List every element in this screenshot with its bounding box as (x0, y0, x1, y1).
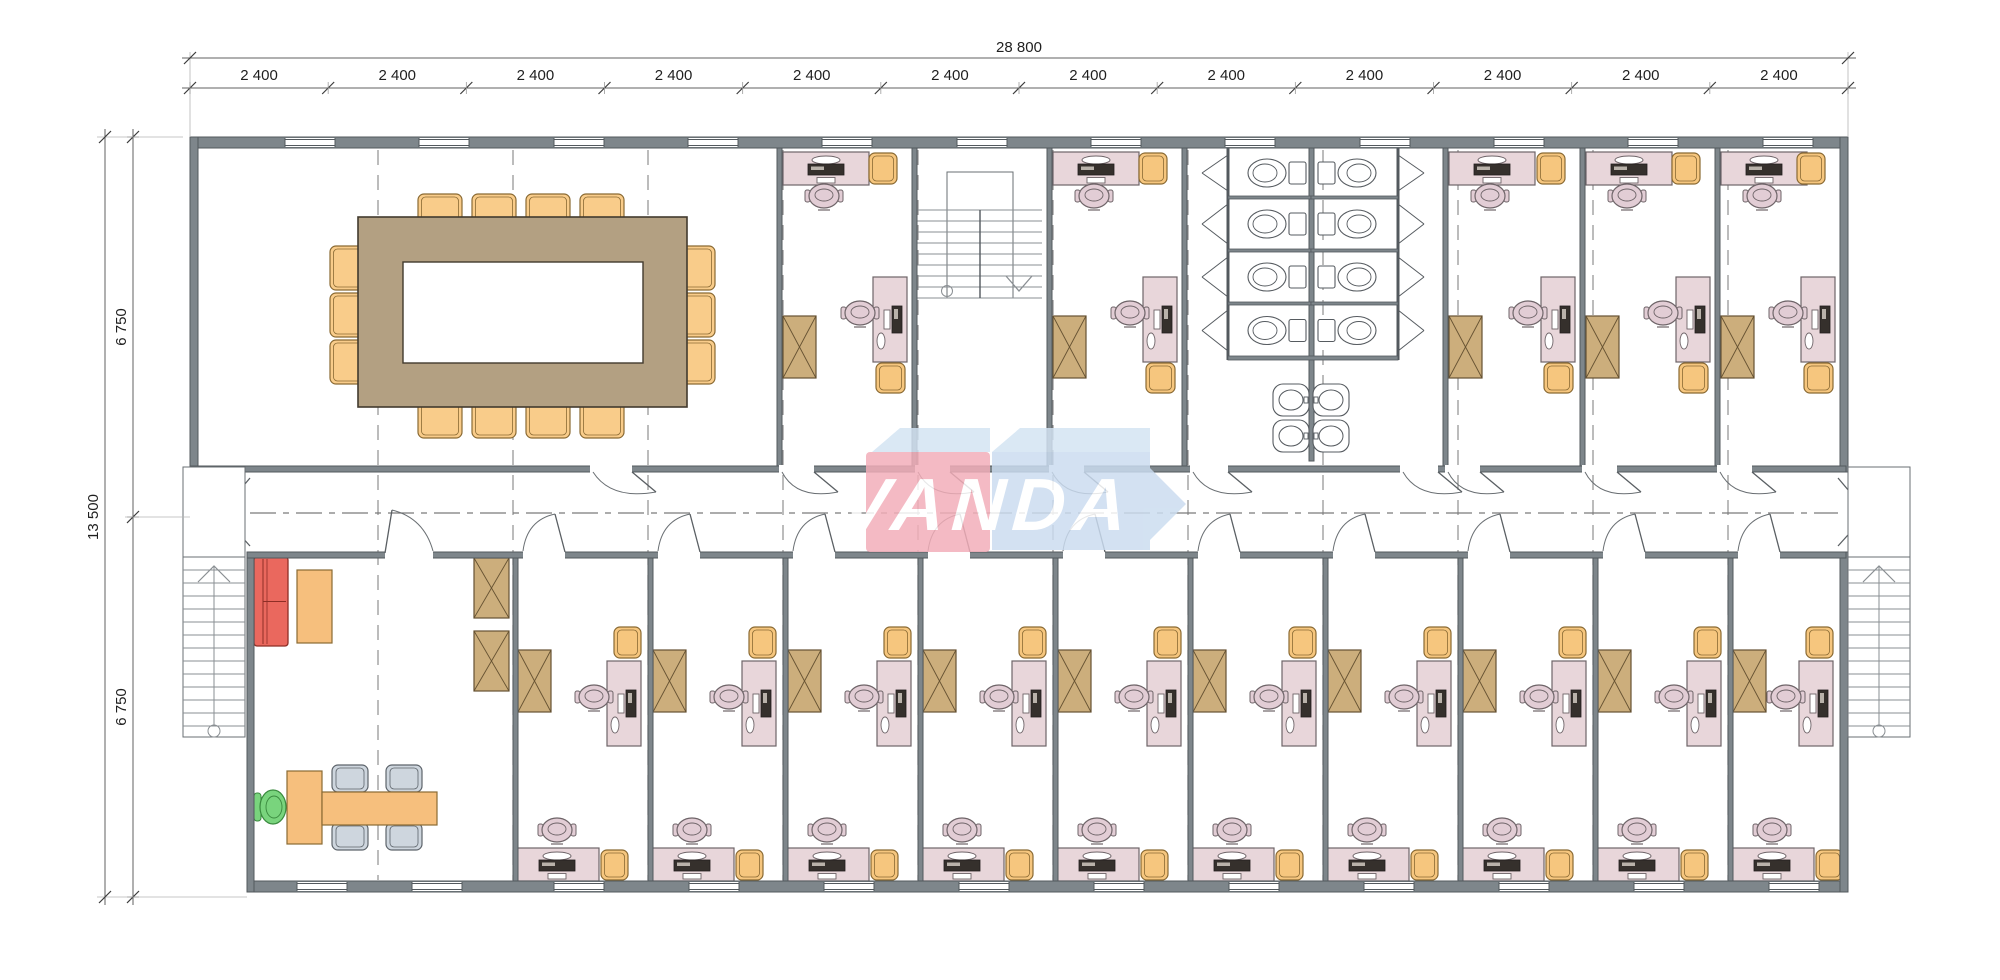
desk (651, 848, 734, 881)
office-room (1191, 627, 1316, 881)
door-swing (1468, 514, 1510, 552)
window (1229, 882, 1279, 891)
cabinet (1193, 650, 1226, 712)
door-swing (593, 472, 656, 494)
sink (1313, 420, 1349, 452)
armchair (1006, 850, 1033, 880)
window (1769, 882, 1819, 891)
office-room (1326, 627, 1451, 881)
toilet-block (1202, 148, 1424, 461)
desk (1596, 848, 1679, 881)
dimension-label: 2 400 (931, 67, 969, 84)
task-chair (805, 184, 843, 210)
window (1634, 882, 1684, 891)
armchair (884, 627, 911, 658)
door-swing (1448, 472, 1504, 494)
window (1763, 138, 1813, 147)
door-swing (523, 514, 565, 552)
dimension-label: 2 400 (1069, 67, 1107, 84)
desk (783, 152, 869, 185)
desk (873, 277, 907, 362)
desk (607, 661, 641, 746)
door-swing (1403, 472, 1462, 494)
sink (1313, 384, 1349, 416)
office-room (783, 152, 907, 393)
armchair (1019, 627, 1046, 658)
window (959, 882, 1009, 891)
desk (1012, 661, 1046, 746)
guest-chair (386, 823, 422, 850)
office-room (786, 627, 911, 881)
cabinet (653, 650, 686, 712)
office-room (1731, 627, 1843, 881)
desk (1541, 277, 1575, 362)
desk (1687, 661, 1721, 746)
green-chair (254, 790, 286, 824)
toilet (1248, 210, 1306, 238)
door-swing (1193, 472, 1252, 494)
toilet (1318, 210, 1376, 238)
task-chair (538, 818, 576, 844)
window (1091, 138, 1141, 147)
office-room (1721, 152, 1835, 393)
cabinet (1328, 650, 1361, 712)
guest-chair (332, 765, 368, 792)
dimension-label: 6 750 (113, 688, 130, 726)
armchair (876, 363, 905, 393)
window (1094, 882, 1144, 891)
cabinet (1449, 316, 1482, 378)
task-chair (1075, 184, 1113, 210)
sink (1273, 420, 1309, 452)
armchair (871, 850, 898, 880)
armchair (614, 627, 641, 658)
desk (1147, 661, 1181, 746)
dimension-label: 2 400 (1207, 67, 1245, 84)
task-chair (1743, 184, 1781, 210)
desk (1676, 277, 1710, 362)
desk (921, 848, 1004, 881)
door-swing (793, 514, 835, 552)
cabinet (1058, 650, 1091, 712)
desk (1326, 848, 1409, 881)
armchair (1546, 850, 1573, 880)
window (1360, 138, 1410, 147)
logo-text: VANDA (838, 463, 1136, 546)
armchair (1154, 627, 1181, 658)
door-swing (1333, 514, 1375, 552)
task-chair (1213, 818, 1251, 844)
floor-plan-canvas: 28 800 2 400 2 400 2 400 2 400 2 400 2 4… (0, 0, 2000, 980)
desk (1586, 152, 1672, 185)
vanda-logo: VANDA (838, 428, 1186, 552)
dimension-top-segments: 2 400 2 400 2 400 2 400 2 400 2 400 2 40… (182, 67, 1856, 94)
external-stair-left (183, 467, 245, 737)
armchair (1141, 850, 1168, 880)
desk (1801, 277, 1835, 362)
dimension-top-total: 28 800 (182, 39, 1856, 64)
meeting-room (330, 194, 715, 438)
window (412, 882, 462, 891)
office-room (1056, 627, 1181, 881)
office-room (1596, 627, 1721, 881)
armchair (1806, 627, 1833, 658)
task-chair (1471, 184, 1509, 210)
dimension-label: 2 400 (517, 67, 555, 84)
window (1225, 138, 1275, 147)
desk (1731, 848, 1814, 881)
armchair (1289, 627, 1316, 658)
armchair (1797, 153, 1825, 184)
armchair (1424, 627, 1451, 658)
dimension-label: 2 400 (240, 67, 278, 84)
task-chair (1483, 818, 1521, 844)
armchair (1139, 153, 1167, 184)
office-room (921, 627, 1046, 881)
door-swing (1198, 514, 1240, 552)
desk (1721, 152, 1807, 185)
dimension-label: 2 400 (1346, 67, 1384, 84)
office-room (651, 627, 776, 881)
armchair (1672, 153, 1700, 184)
toilet (1318, 159, 1376, 187)
toilet (1318, 317, 1376, 345)
desk (877, 661, 911, 746)
guest-chair (386, 765, 422, 792)
window (824, 882, 874, 891)
task-chair (943, 818, 981, 844)
toilet (1248, 159, 1306, 187)
cabinet (1598, 650, 1631, 712)
dimension-label: 2 400 (1484, 67, 1522, 84)
cabinet (1733, 650, 1766, 712)
external-stair-right (1848, 467, 1910, 737)
office-room (1461, 627, 1586, 881)
armchair (1146, 363, 1175, 393)
window (554, 882, 604, 891)
stairwell (917, 172, 1042, 298)
window (822, 138, 872, 147)
desk (1552, 661, 1586, 746)
window (1364, 882, 1414, 891)
desk (1282, 661, 1316, 746)
desk (1053, 152, 1139, 185)
door-swing (1603, 514, 1645, 552)
window (554, 138, 604, 147)
office-room (1449, 152, 1575, 393)
task-chair (1348, 818, 1386, 844)
office-room (516, 627, 641, 881)
dimension-label: 13 500 (85, 494, 102, 540)
window (285, 138, 335, 147)
desk (1449, 152, 1535, 185)
dimension-label: 6 750 (113, 308, 130, 346)
armchair (1816, 850, 1843, 880)
armchair (1679, 363, 1708, 393)
dimension-label: 28 800 (996, 39, 1042, 56)
desk (516, 848, 599, 881)
toilet (1318, 263, 1376, 291)
door-swing (658, 514, 700, 552)
window (957, 138, 1007, 147)
cabinet (788, 650, 821, 712)
floor-plan-svg: 28 800 2 400 2 400 2 400 2 400 2 400 2 4… (0, 0, 2000, 980)
task-chair (1608, 184, 1646, 210)
armchair (601, 850, 628, 880)
armchair (1411, 850, 1438, 880)
toilet (1248, 263, 1306, 291)
dimension-label: 2 400 (1622, 67, 1660, 84)
armchair (736, 850, 763, 880)
cabinet (474, 631, 509, 691)
toilet (1248, 317, 1306, 345)
dimension-label: 2 400 (793, 67, 831, 84)
cabinet (1463, 650, 1496, 712)
desk (1461, 848, 1544, 881)
conference-table (358, 217, 687, 407)
task-chair (1618, 818, 1656, 844)
sofa (254, 557, 288, 646)
desk (742, 661, 776, 746)
desk (786, 848, 869, 881)
armchair (1694, 627, 1721, 658)
desk (1417, 661, 1451, 746)
reception-room (252, 552, 509, 850)
cabinet (783, 316, 816, 378)
window (688, 138, 738, 147)
cabinet (518, 650, 551, 712)
window (1628, 138, 1678, 147)
dimension-label: 2 400 (1760, 67, 1798, 84)
desk (1143, 277, 1177, 362)
guest-chair (332, 823, 368, 850)
armchair (1544, 363, 1573, 393)
desk (1056, 848, 1139, 881)
task-chair (808, 818, 846, 844)
armchair (1804, 363, 1833, 393)
armchair (1559, 627, 1586, 658)
dimension-label: 2 400 (655, 67, 693, 84)
coffee-table (297, 570, 332, 643)
task-chair (1078, 818, 1116, 844)
cabinet (474, 558, 509, 618)
armchair (1276, 850, 1303, 880)
sink (1273, 384, 1309, 416)
armchair (749, 627, 776, 658)
window (689, 882, 739, 891)
office-room (1586, 152, 1710, 393)
window (1499, 882, 1549, 891)
cabinet (923, 650, 956, 712)
cabinet (1053, 316, 1086, 378)
door-swing (1738, 514, 1780, 552)
window (419, 138, 469, 147)
task-chair (673, 818, 711, 844)
office-room (1053, 152, 1177, 393)
cabinet (1721, 316, 1754, 378)
dimension-label: 2 400 (378, 67, 416, 84)
window (297, 882, 347, 891)
desk (1799, 661, 1833, 746)
armchair (1681, 850, 1708, 880)
desk (1191, 848, 1274, 881)
armchair (869, 153, 897, 184)
window (1494, 138, 1544, 147)
cabinet (1586, 316, 1619, 378)
door-swing (782, 472, 838, 494)
armchair (1537, 153, 1565, 184)
dimension-left: 13 500 6 750 6 750 (85, 129, 139, 905)
task-chair (1753, 818, 1791, 844)
